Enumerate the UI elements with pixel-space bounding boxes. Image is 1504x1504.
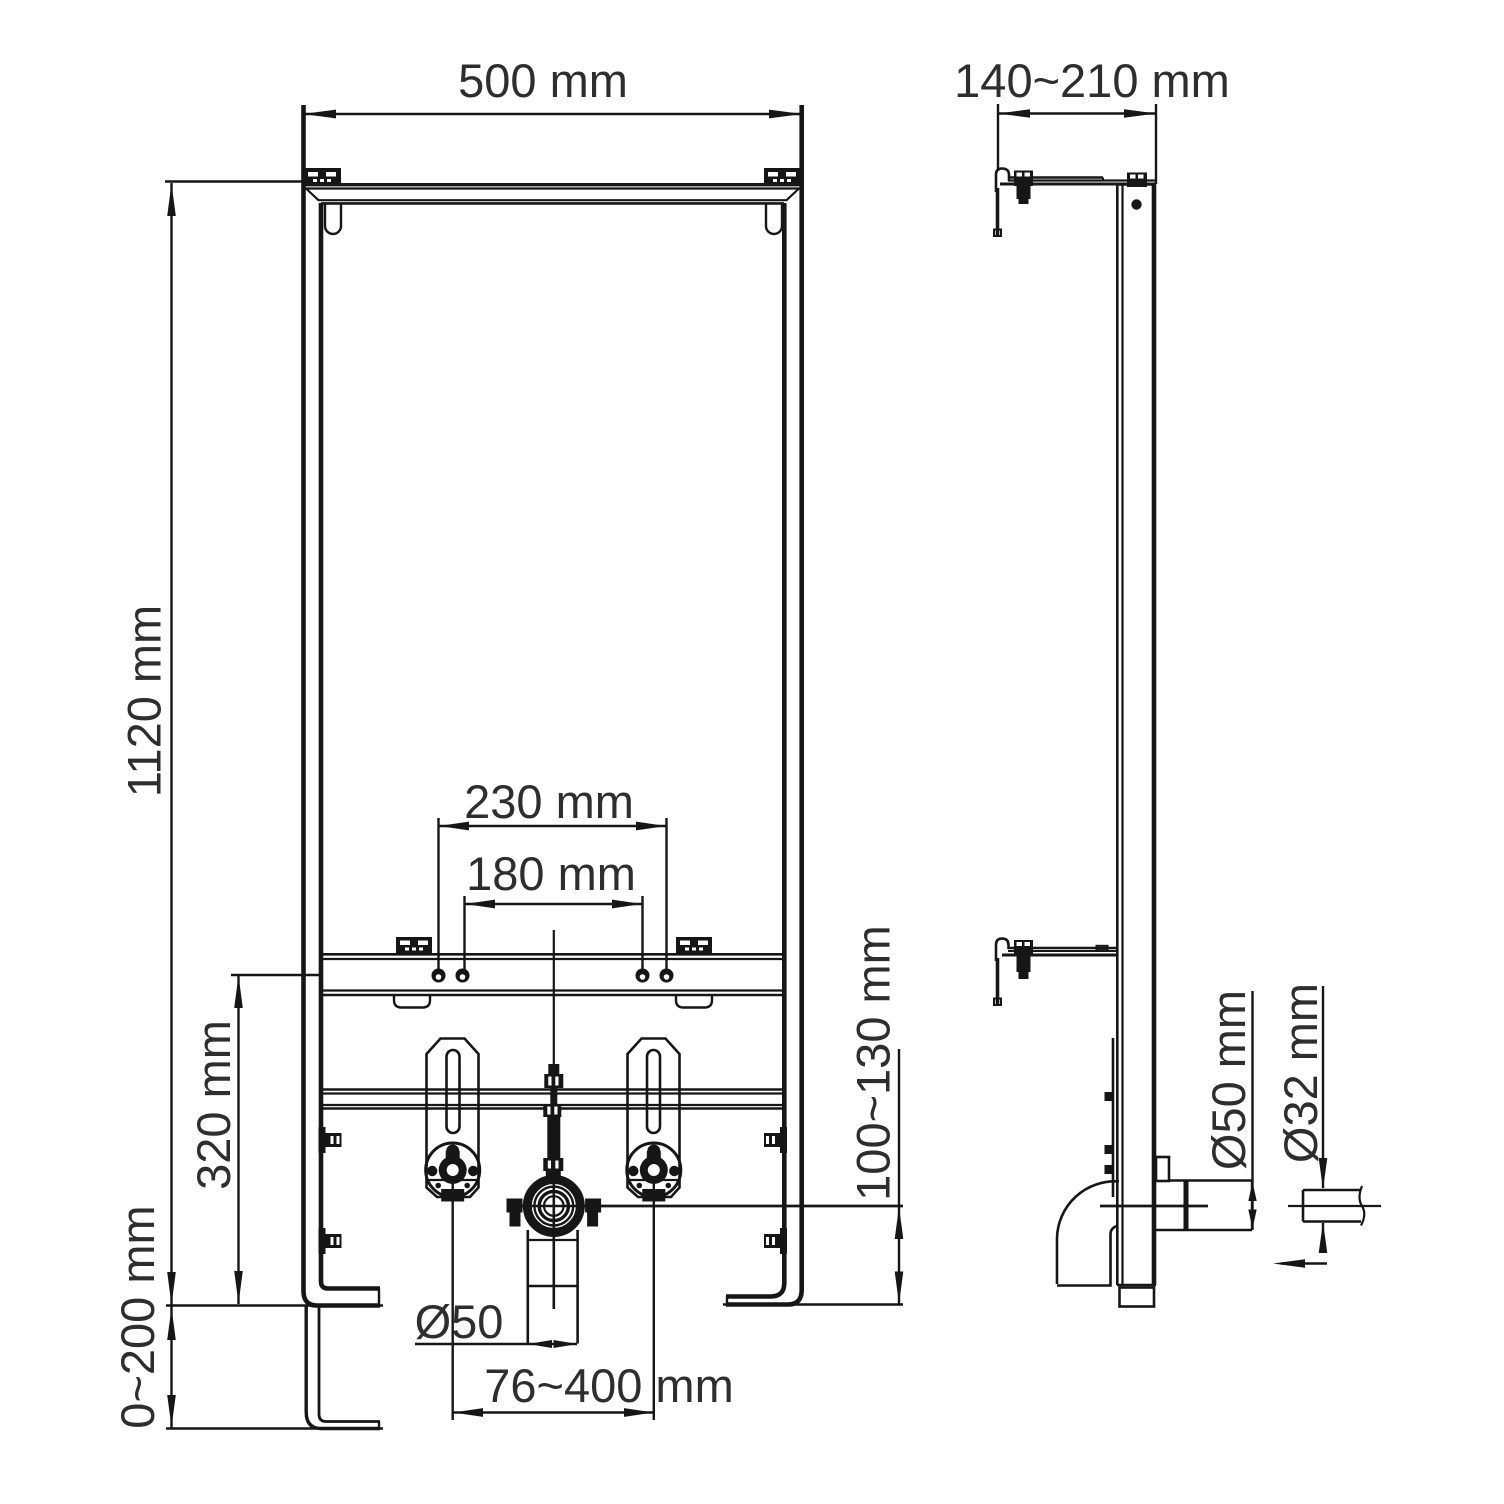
svg-text:0~200 mm: 0~200 mm <box>111 1205 164 1428</box>
svg-text:Ø50 mm: Ø50 mm <box>1202 990 1255 1170</box>
svg-text:180 mm: 180 mm <box>466 847 636 900</box>
svg-text:140~210 mm: 140~210 mm <box>954 54 1230 107</box>
svg-text:500 mm: 500 mm <box>458 54 628 107</box>
svg-text:Ø50: Ø50 <box>415 1295 504 1348</box>
svg-text:230 mm: 230 mm <box>464 775 634 828</box>
svg-text:Ø32 mm: Ø32 mm <box>1274 983 1327 1163</box>
svg-text:1120 mm: 1120 mm <box>118 605 171 797</box>
svg-text:320 mm: 320 mm <box>187 1020 240 1190</box>
svg-text:100~130 mm: 100~130 mm <box>847 925 900 1201</box>
svg-text:76~400 mm: 76~400 mm <box>484 1359 734 1412</box>
